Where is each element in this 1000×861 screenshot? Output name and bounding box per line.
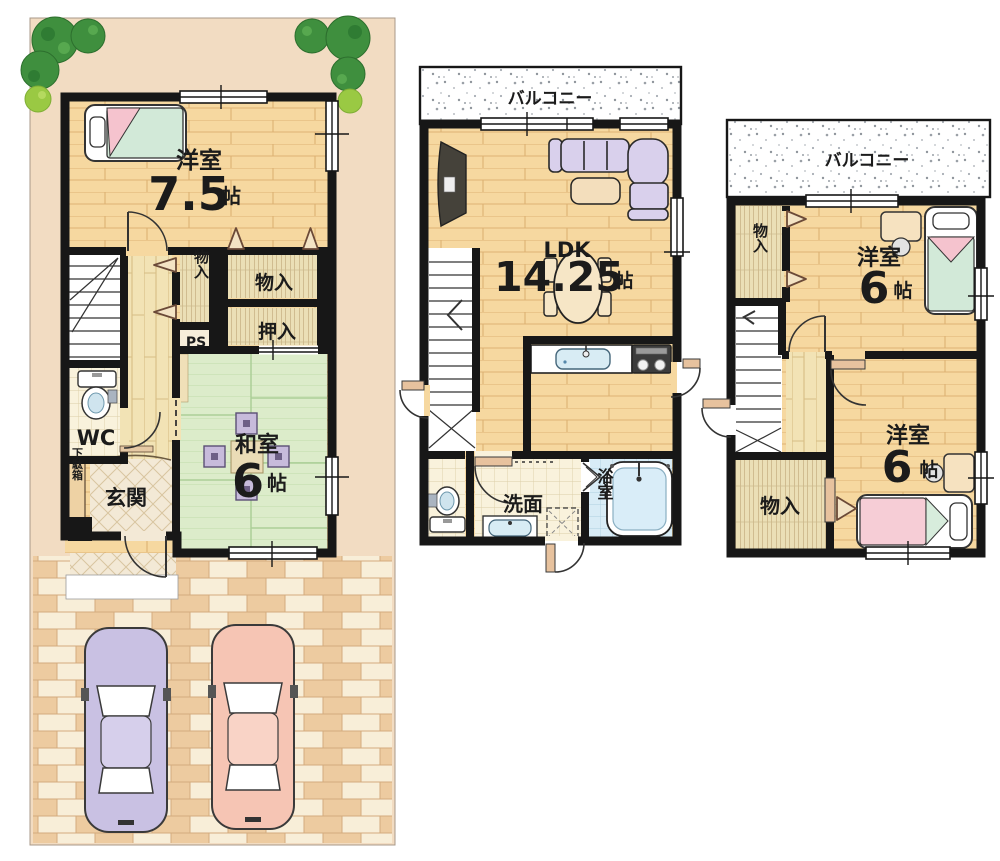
label-balcony-floor3: バルコニー [825,151,910,171]
room-size-western-top: 6 [859,263,890,314]
label-entrance: 玄関 [105,486,147,510]
vanity-sink [483,516,537,539]
room-size-japanese: 6 [232,454,264,508]
stairs-floor3-bg [735,306,782,452]
coffee-table [571,178,620,204]
tree-icon [295,19,329,53]
room-unit-western: 帖 [221,184,241,208]
floorplan-canvas: 洋室 7.5 帖 物入 物入 押入 PS WC 下駄箱 玄関 和室 6 帖 [0,0,1000,861]
tv-icon [438,142,466,226]
tree-icon [71,19,105,53]
room-size-ldk: 14.25 [494,253,624,301]
room-unit-western-bottom: 帖 [919,458,938,481]
stairs-floor1-bg [69,255,120,364]
bathtub [607,462,672,536]
label-washroom: 洗面 [503,492,543,516]
floorplan-image: 洋室 7.5 帖 物入 物入 押入 PS WC 下駄箱 玄関 和室 6 帖 [0,0,1000,861]
kitchen-sink [556,349,610,369]
bed-bottom-room [857,495,972,548]
bed-top-room [925,207,977,314]
tree-icon [25,86,51,112]
label-bathroom: 浴室 [595,467,614,500]
label-oshiire: 押入 [258,320,296,343]
label-wc: WC [77,426,116,450]
car-icon-purple [81,628,171,832]
label-storage-wide: 物入 [255,271,293,294]
bed [85,105,186,161]
second-floor-plan: バルコニー LDK 14.25 帖 洗面 浴室 [400,67,700,572]
stairs-floor2-bg [428,248,476,451]
room-size-western-bottom: 6 [882,442,913,493]
label-storage-top: 物入 [751,222,769,253]
car-icon-pink [208,625,298,829]
tree-icon [338,89,362,113]
porch-step [66,575,178,599]
label-shoe-cabinet: 下駄箱 [71,447,84,481]
third-floor-plan: バルコニー 物入 洋室 6 帖 物入 洋室 6 帖 [702,120,994,565]
stove [632,345,671,373]
tree-icon [331,57,365,91]
label-balcony-floor2: バルコニー [508,89,593,109]
hallway-floor3 [786,352,826,452]
tree-icon [326,16,370,60]
label-pipe-space: PS [186,335,206,351]
label-storage-hall: 物入 [192,248,210,279]
room-unit-japanese: 帖 [267,471,287,495]
label-storage-bottom: 物入 [760,494,800,518]
storage-top-floor [735,206,784,300]
tree-icon [21,51,59,89]
kitchen-counter [531,345,632,373]
room-unit-ldk: 帖 [614,269,633,292]
room-size-western: 7.5 [148,167,230,221]
first-floor-plan: 洋室 7.5 帖 物入 物入 押入 PS WC 下駄箱 玄関 和室 6 帖 [21,16,395,845]
room-unit-western-top: 帖 [893,279,912,302]
